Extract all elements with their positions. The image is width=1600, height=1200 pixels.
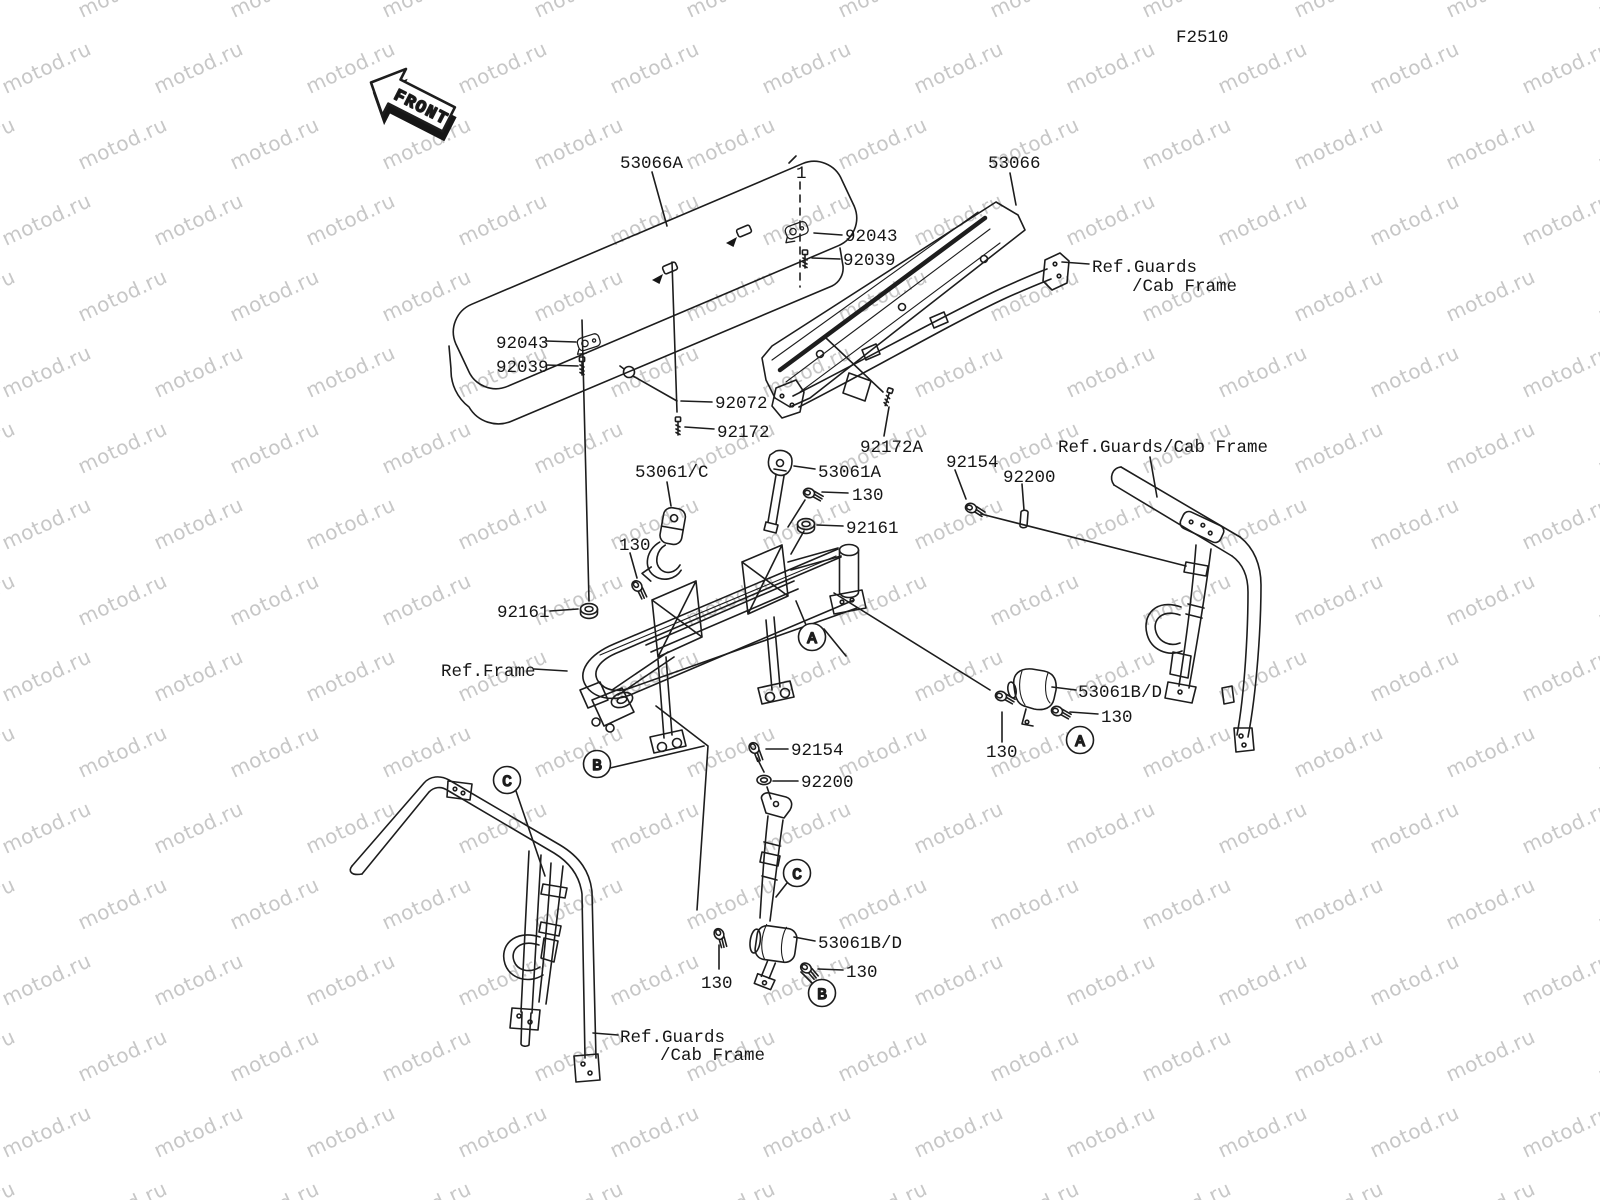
watermark-text: motod.ru [302,340,399,402]
label-92200-right: 92200 [1003,468,1056,488]
watermark-text: motod.ru [150,492,247,554]
watermark-text: motod.ru [834,112,931,174]
watermark-text: motod.ru [226,720,323,782]
watermark-text: motod.ru [1214,796,1311,858]
watermark-text: motod.ru [530,720,627,782]
watermark-text: motod.ru [1290,264,1387,326]
figure-code: F2510 [1176,28,1229,48]
watermark-text: motod.ru [0,112,19,174]
watermark-text: motod.ru [1594,416,1600,478]
watermark-text: motod.ru [1290,872,1387,934]
watermark-text: motod.ru [150,36,247,98]
watermark-text: motod.ru [834,872,931,934]
watermark-text: motod.ru [1594,568,1600,630]
watermark-text: motod.ru [378,1024,475,1086]
watermark-text: motod.ru [1442,1176,1539,1200]
watermark-text: motod.ru [758,188,855,250]
watermark-text: motod.ru [0,1100,95,1162]
callout-circle-c-left: C [494,767,521,794]
label-92043-left: 92043 [496,334,549,354]
watermark-text: motod.ru [1062,1100,1159,1162]
watermark-text: motod.ru [454,36,551,98]
watermark-text: motod.ru [530,112,627,174]
watermark-text: motod.ru [0,720,19,782]
watermark-text: motod.ru [1290,1176,1387,1200]
label-92200-bottom: 92200 [801,773,854,793]
watermark-text: motod.ru [1138,872,1235,934]
watermark-text: motod.ru [1214,340,1311,402]
watermark-text: motod.ru [378,1176,475,1200]
bolt-130-a2 [1050,705,1072,719]
watermark-text: motod.ru [910,1100,1007,1162]
watermark-text: motod.ru [302,644,399,706]
seat-frame [580,545,866,754]
watermark-text: motod.ru [1214,1100,1311,1162]
watermark-text: motod.ru [1062,796,1159,858]
screw-92172a [883,388,894,407]
label-53066: 53066 [988,154,1041,174]
watermark-text: motod.ru [1518,1100,1600,1162]
watermark-text: motod.ru [1442,720,1539,782]
watermark-text: motod.ru [378,568,475,630]
watermark-text: motod.ru [0,36,95,98]
watermark-text: motod.ru [758,36,855,98]
label-92154-bottom: 92154 [791,741,844,761]
watermark-text: motod.ru [226,1024,323,1086]
watermark-text: motod.ru [0,188,95,250]
watermark-text: motod.ru [1518,644,1600,706]
screw-92172 [675,417,680,435]
label-92161-top: 92161 [846,519,899,539]
label-53061bd-bottom: 53061B/D [818,934,902,954]
watermark-text: motod.ru [150,948,247,1010]
watermark-text: motod.ru [1062,492,1159,554]
label-ref-guards-right: Ref.Guards/Cab Frame [1058,438,1268,458]
watermark-text: motod.ru [1442,112,1539,174]
parts-diagram-page: motod.rumotod.rumotod.rumotod.rumotod.ru… [0,0,1600,1200]
watermark-text: motod.ru [454,1100,551,1162]
watermark-text: motod.ru [834,0,931,23]
watermark-text: motod.ru [606,948,703,1010]
bolt-130-left [630,579,650,600]
watermark-text: motod.ru [530,1176,627,1200]
watermark-text: motod.ru [378,0,475,23]
watermark-text: motod.ru [910,948,1007,1010]
watermark-text: motod.ru [1518,492,1600,554]
watermark-text: motod.ru [1138,568,1235,630]
watermark-text: motod.ru [74,112,171,174]
watermark-text: motod.ru [986,872,1083,934]
watermark-text: motod.ru [1442,416,1539,478]
watermark-text: motod.ru [682,720,779,782]
watermark-text: motod.ru [530,0,627,23]
watermark-text: motod.ru [1138,0,1235,23]
watermark-text: motod.ru [0,872,19,934]
watermark-text: motod.ru [226,112,323,174]
label-92172a: 92172A [860,438,924,458]
watermark-text: motod.ru [1442,568,1539,630]
label-ref-guards-top-2: /Cab Frame [1132,277,1237,297]
watermark-text: motod.ru [1594,264,1600,326]
watermark-text: motod.ru [1366,948,1463,1010]
bolt-130-top [802,487,824,501]
watermark-text: motod.ru [910,188,1007,250]
watermark-text: motod.ru [1594,872,1600,934]
exploded-parts-diagram: motod.rumotod.rumotod.rumotod.rumotod.ru… [0,0,1600,1200]
watermark-text: motod.ru [1594,1176,1600,1200]
watermark-text: motod.ru [834,568,931,630]
watermark-text: motod.ru [986,0,1083,23]
callout-circle-b-mid: B [584,751,611,778]
watermark-text: motod.ru [302,188,399,250]
watermark-text: motod.ru [0,644,95,706]
watermark-text: motod.ru [378,416,475,478]
label-92172: 92172 [717,423,770,443]
watermark-text: motod.ru [302,1100,399,1162]
watermark-text: motod.ru [910,36,1007,98]
watermark-text: motod.ru [910,492,1007,554]
watermark-text: motod.ru [0,264,19,326]
watermark-text: motod.ru [1442,872,1539,934]
label-ref-frame: Ref.Frame [441,662,536,682]
watermark-text: motod.ru [606,340,703,402]
watermark-text: motod.ru [1290,112,1387,174]
watermark-text: motod.ru [1138,720,1235,782]
watermark-text: motod.ru [226,568,323,630]
watermark-text: motod.ru [150,188,247,250]
watermark-text: motod.ru [1214,644,1311,706]
watermark-text: motod.ru [1594,1024,1600,1086]
watermark-text: motod.ru [0,416,19,478]
svg-text:B: B [817,986,827,1004]
watermark-text: motod.ru [758,1100,855,1162]
watermark-text: motod.ru [1366,188,1463,250]
watermark-text: motod.ru [682,1176,779,1200]
label-92043-top: 92043 [845,227,898,247]
watermark-text: motod.ru [1366,492,1463,554]
watermark-text: motod.ru [150,796,247,858]
watermark-text: motod.ru [758,796,855,858]
label-53066a: 53066A [620,154,684,174]
label-53061a: 53061A [818,463,882,483]
watermark-text: motod.ru [1594,112,1600,174]
watermark-text: motod.ru [1290,1024,1387,1086]
watermark-text: motod.ru [1518,948,1600,1010]
watermark-text: motod.ru [1290,416,1387,478]
watermark-text: motod.ru [682,0,779,23]
watermark-text: motod.ru [1214,492,1311,554]
bolt-130-a1 [994,690,1016,704]
watermark-text: motod.ru [74,720,171,782]
watermark-text: motod.ru [378,264,475,326]
watermark-text: motod.ru [74,568,171,630]
watermark-text: motod.ru [74,872,171,934]
watermark-text: motod.ru [226,264,323,326]
watermark-text: motod.ru [74,416,171,478]
watermark-text: motod.ru [1138,1176,1235,1200]
watermark-text: motod.ru [1290,0,1387,23]
label-53061c: 53061/C [635,463,709,483]
watermark-text: motod.ru [1214,188,1311,250]
svg-text:C: C [792,866,802,884]
watermark-text: motod.ru [1518,796,1600,858]
watermark-text: motod.ru [682,264,779,326]
svg-text:C: C [502,773,512,791]
watermark-text: motod.ru [74,264,171,326]
watermark-text: motod.ru [1290,568,1387,630]
watermark-text: motod.ru [986,568,1083,630]
watermark-text: motod.ru [1062,36,1159,98]
watermark-text: motod.ru [1594,720,1600,782]
label-92039-top: 92039 [843,251,896,271]
watermark-text: motod.ru [0,948,95,1010]
watermark-text: motod.ru [1518,340,1600,402]
watermark-text: motod.ru [1062,188,1159,250]
watermark-text: motod.ru [834,1176,931,1200]
watermark-text: motod.ru [74,1176,171,1200]
watermark-text: motod.ru [0,492,95,554]
label-item-1: 1 [796,164,807,184]
watermark-text: motod.ru [226,0,323,23]
watermark-text: motod.ru [1594,0,1600,23]
label-92072: 92072 [715,394,768,414]
watermark-text: motod.ru [226,416,323,478]
watermark-text: motod.ru [0,1024,19,1086]
watermark-text: motod.ru [530,416,627,478]
label-ref-guards-bottom-1: Ref.Guards [620,1028,725,1048]
watermark-text: motod.ru [1138,1024,1235,1086]
callout-circle-a-mid: A [799,624,826,651]
watermark-text: motod.ru [150,1100,247,1162]
watermark-text: motod.ru [302,948,399,1010]
watermark-text: motod.ru [910,644,1007,706]
watermark-text: motod.ru [150,644,247,706]
watermark-text: motod.ru [986,1176,1083,1200]
watermark-text: motod.ru [606,36,703,98]
watermark-text: motod.ru [150,340,247,402]
watermark-text: motod.ru [1366,1100,1463,1162]
watermark-text: motod.ru [682,112,779,174]
watermark-text: motod.ru [1442,1024,1539,1086]
watermark-text: motod.ru [1290,720,1387,782]
svg-text:B: B [592,757,602,775]
watermark-text: motod.ru [758,644,855,706]
watermark-text: motod.ru [1518,36,1600,98]
watermark-text: motod.ru [1366,340,1463,402]
watermark-text: motod.ru [606,796,703,858]
washer-92200-bottom [757,775,771,784]
watermark-text: motod.ru [1518,188,1600,250]
watermark-text: motod.ru [226,872,323,934]
callout-circle-b-bottom: B [809,980,836,1007]
label-130-left: 130 [619,536,651,556]
label-130-top: 130 [852,486,884,506]
watermark-text: motod.ru [0,340,95,402]
bolt-130-b1 [712,927,730,949]
watermark-text: motod.ru [74,0,171,23]
watermark-text: motod.ru [606,1100,703,1162]
watermark-text: motod.ru [1214,948,1311,1010]
label-130-a-left: 130 [986,743,1018,763]
label-53061bd-right: 53061B/D [1078,683,1162,703]
label-92039-left: 92039 [496,358,549,378]
watermark-text: motod.ru [1442,264,1539,326]
watermark-text: motod.ru [0,796,95,858]
callout-circle-a-right: A [1067,727,1094,754]
watermark-text: motod.ru [74,1024,171,1086]
nut-92161-left [581,604,598,619]
watermark-text: motod.ru [378,872,475,934]
watermark-text: motod.ru [1366,36,1463,98]
label-92154-right: 92154 [946,453,999,473]
label-130-a-right: 130 [1101,708,1133,728]
watermark-text: motod.ru [0,568,19,630]
watermark-text: motod.ru [302,492,399,554]
watermark-text: motod.ru [0,1176,19,1200]
svg-text:A: A [807,630,817,648]
label-92161-left: 92161 [497,603,550,623]
svg-text:A: A [1075,733,1085,751]
watermark-text: motod.ru [910,796,1007,858]
watermark-text: motod.ru [378,720,475,782]
watermark-text: motod.ru [1366,644,1463,706]
watermark-text: motod.ru [910,340,1007,402]
watermark-text: motod.ru [0,0,19,23]
callout-circle-c-mid: C [784,860,811,887]
watermark-text: motod.ru [986,1024,1083,1086]
watermark-text: motod.ru [302,796,399,858]
watermark-text: motod.ru [1062,948,1159,1010]
watermark-text: motod.ru [226,1176,323,1200]
watermark-text: motod.ru [1366,796,1463,858]
label-ref-guards-bottom-2: /Cab Frame [660,1046,765,1066]
label-130-b-left: 130 [701,974,733,994]
label-130-b-right: 130 [846,963,878,983]
watermark-text: motod.ru [834,1024,931,1086]
watermark-text: motod.ru [1442,0,1539,23]
watermark-text: motod.ru [454,188,551,250]
watermark-text: motod.ru [454,492,551,554]
watermark-text: motod.ru [1062,340,1159,402]
label-ref-guards-top-1: Ref.Guards [1092,258,1197,278]
watermark-text: motod.ru [454,948,551,1010]
watermark-text: motod.ru [1138,112,1235,174]
